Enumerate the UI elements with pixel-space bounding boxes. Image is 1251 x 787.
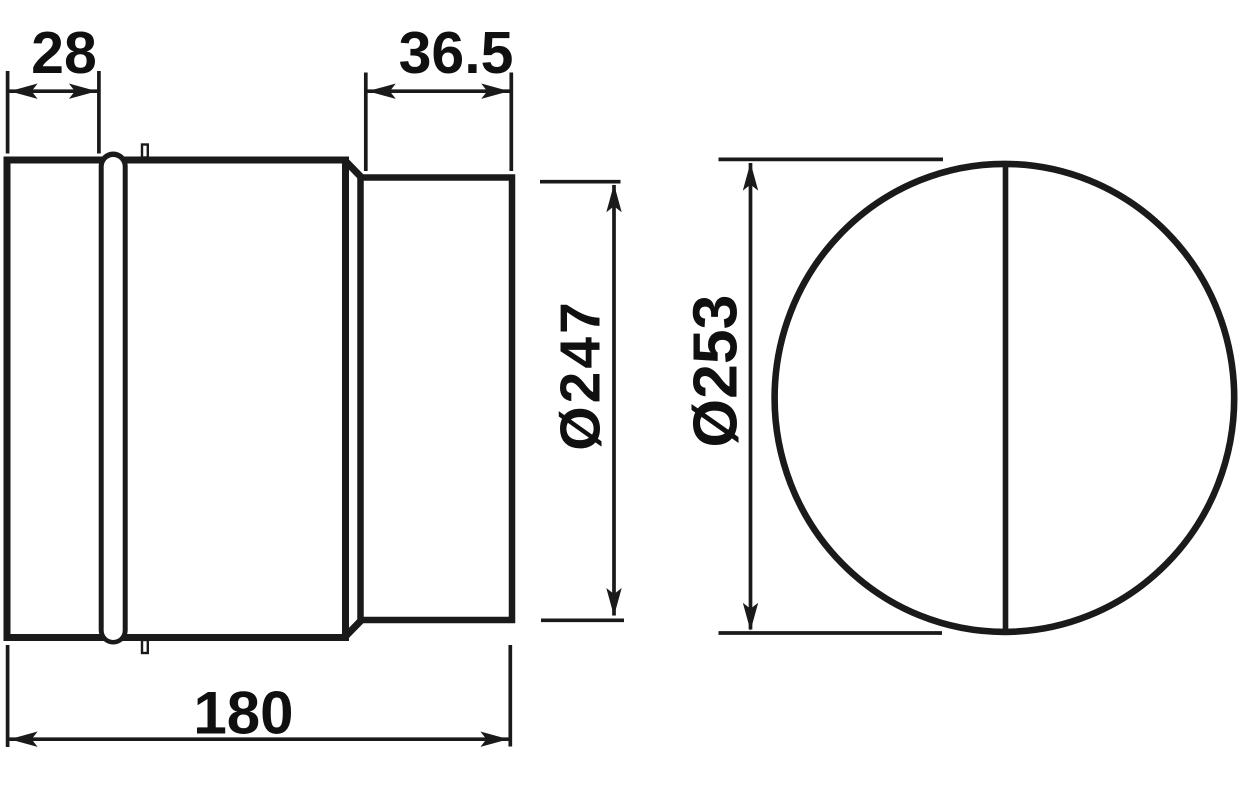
- svg-text:180: 180: [193, 680, 293, 747]
- svg-text:28: 28: [31, 20, 97, 86]
- svg-text:36.5: 36.5: [399, 20, 514, 86]
- svg-text:Ø247: Ø247: [549, 299, 613, 450]
- svg-text:Ø253: Ø253: [681, 295, 751, 448]
